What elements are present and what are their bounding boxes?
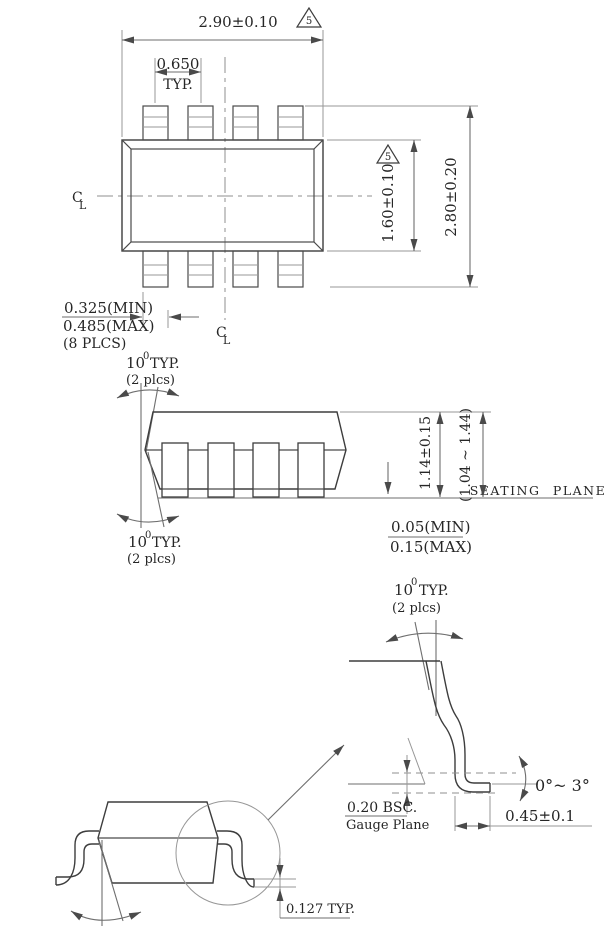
revision-flag-number: 5 [306,16,312,27]
angle-arc [117,390,179,398]
angle-reference-line [415,622,429,690]
side-view: 10 0 TYP. (2 plcs) SEATING PLANE 10 0 TY… [117,351,604,567]
lead [278,251,303,287]
top-view: C L C L 2.90±0.10 [62,8,478,352]
detail-leader-arrow [268,745,344,820]
dim-height-label: 1.14±0.15 [418,416,434,490]
front-view: 0.127 TYP. [56,745,355,926]
detail-circle [176,801,280,905]
lead [143,106,168,140]
angle-arc [519,756,526,801]
lead-angle-degree-sup: 0 [411,577,417,588]
drawing-canvas: C L C L 2.90±0.10 [0,0,604,932]
lead [233,106,258,140]
gauge-plane-label: Gauge Plane [346,818,430,833]
lead-angle-typ: TYP. [150,356,180,372]
lead-angle-typ: TYP. [152,535,182,551]
lead-width-note-label: (8 PLCS) [63,336,126,352]
seating-plane-label: SEATING PLANE [470,483,604,498]
foot-length-label: 0.45±0.1 [505,807,575,825]
foot-angle-label: 0°~ 3° [535,776,590,795]
lead-width-min-label: 0.325(MIN) [64,299,153,317]
lead [188,251,213,287]
lead-thickness-label: 0.127 TYP. [286,902,355,917]
lead-width-max-label: 0.485(MAX) [63,317,155,335]
bottom-leads [143,251,303,287]
angle-arc [117,514,179,522]
dim-pitch-typ: TYP. [163,77,193,93]
lead-angle-typ: TYP. [419,583,449,599]
body-corner-chamfer [122,140,131,149]
gauge-offset-label: 0.20 BSC. [347,800,417,816]
top-leads [143,106,303,140]
dim-width-label: 2.90±0.10 [198,13,277,31]
angle-arc [71,911,141,920]
centerline-symbol: L [223,334,231,347]
lead-shoulder-lines [143,265,303,275]
left-lead-inner-edge [56,844,99,877]
body-corner-chamfer [314,140,323,149]
lead [233,251,258,287]
angle-reference-line [99,840,123,921]
dim-pitch-label: 0.650 [157,55,200,73]
lead-shoulder-lines [143,117,303,127]
body-corner-chamfer [314,242,323,251]
standoff-min-label: 0.05(MIN) [391,518,471,536]
dim-height-range-label: (1.04 ~ 1.44) [458,408,474,502]
lead [143,251,168,287]
lead-angle-degree-sup: 0 [143,351,149,362]
lead-edge-extension [408,738,425,784]
lead-angle-degree-sup: 0 [145,530,151,541]
package-outline-drawing: C L C L 2.90±0.10 [0,0,604,932]
lead-angle-places: (2 plcs) [127,552,176,567]
right-lead-inner-edge [217,844,254,879]
lead-angle-places: (2 plcs) [126,373,175,388]
lead-detail-view: 10 0 TYP. (2 plcs) 0.20 BSC. Gauge Plane… [345,577,592,833]
centerline-symbol: L [79,199,87,212]
revision-flag-number: 5 [385,152,391,163]
body-corner-chamfer [122,242,131,251]
lead-inner-edge [441,661,490,783]
dim-body-depth-label: 1.60±0.10 [379,163,397,242]
dim-overall-depth-label: 2.80±0.20 [442,157,460,236]
standoff-max-label: 0.15(MAX) [390,538,472,556]
lead-angle-places: (2 plcs) [392,601,441,616]
angle-arc [386,633,463,642]
package-body-front [98,802,218,883]
lead [188,106,213,140]
lead [278,106,303,140]
